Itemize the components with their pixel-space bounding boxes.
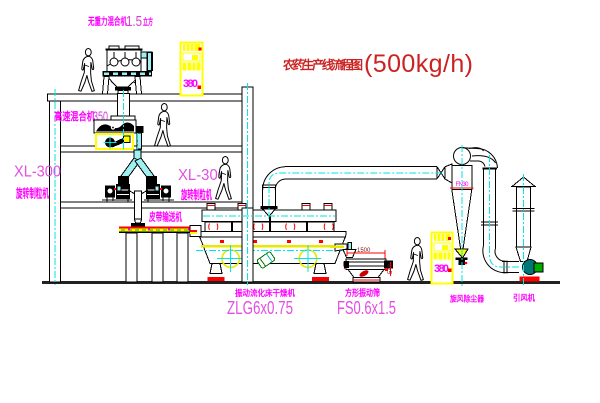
svg-text:XL-300: XL-300	[14, 164, 61, 181]
svg-text:旋转制粒机: 旋转制粒机	[15, 186, 49, 201]
svg-text:ZLG6x0.75: ZLG6x0.75	[227, 298, 293, 318]
svg-text:旋风除尘器: 旋风除尘器	[449, 294, 485, 304]
svg-text:1.5: 1.5	[126, 13, 142, 30]
svg-text:无重力混合机: 无重力混合机	[87, 15, 127, 28]
svg-text:振动流化床干燥机: 振动流化床干燥机	[235, 288, 295, 298]
svg-text:旋转制粒机: 旋转制粒机	[180, 187, 212, 202]
svg-text:380: 380	[434, 263, 449, 275]
svg-text:高速混合机: 高速混合机	[54, 109, 95, 123]
svg-text:380: 380	[183, 78, 198, 90]
svg-text:FN30: FN30	[456, 182, 470, 188]
svg-text:皮带输送机: 皮带输送机	[148, 210, 182, 224]
svg-text:548: 548	[388, 263, 394, 274]
svg-text:立方: 立方	[143, 16, 153, 27]
svg-text:引风机: 引风机	[513, 293, 535, 303]
svg-text:1500: 1500	[357, 248, 371, 254]
svg-text:FS0.6x1.5: FS0.6x1.5	[337, 298, 396, 318]
svg-text:方形振动筛: 方形振动筛	[345, 287, 380, 298]
svg-text:农药生产线流程图: 农药生产线流程图	[282, 57, 363, 72]
svg-text:(500kg/h): (500kg/h)	[364, 50, 473, 78]
